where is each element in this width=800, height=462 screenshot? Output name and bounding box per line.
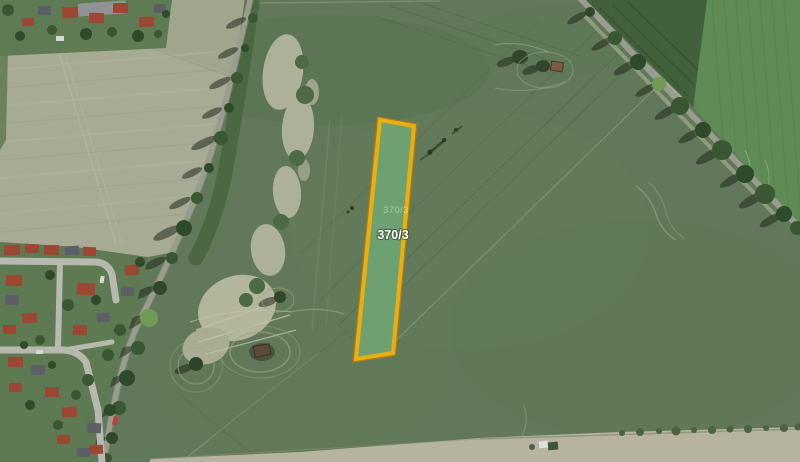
map-view[interactable]: 370/3 370/3 <box>0 0 800 462</box>
aerial-image: 370/3 370/3 <box>0 0 800 462</box>
parcel-cadastral-label: 370/3 <box>383 205 409 215</box>
field-shed-northeast <box>550 61 563 72</box>
parcel-label: 370/3 <box>377 228 408 242</box>
village-north <box>0 0 172 56</box>
